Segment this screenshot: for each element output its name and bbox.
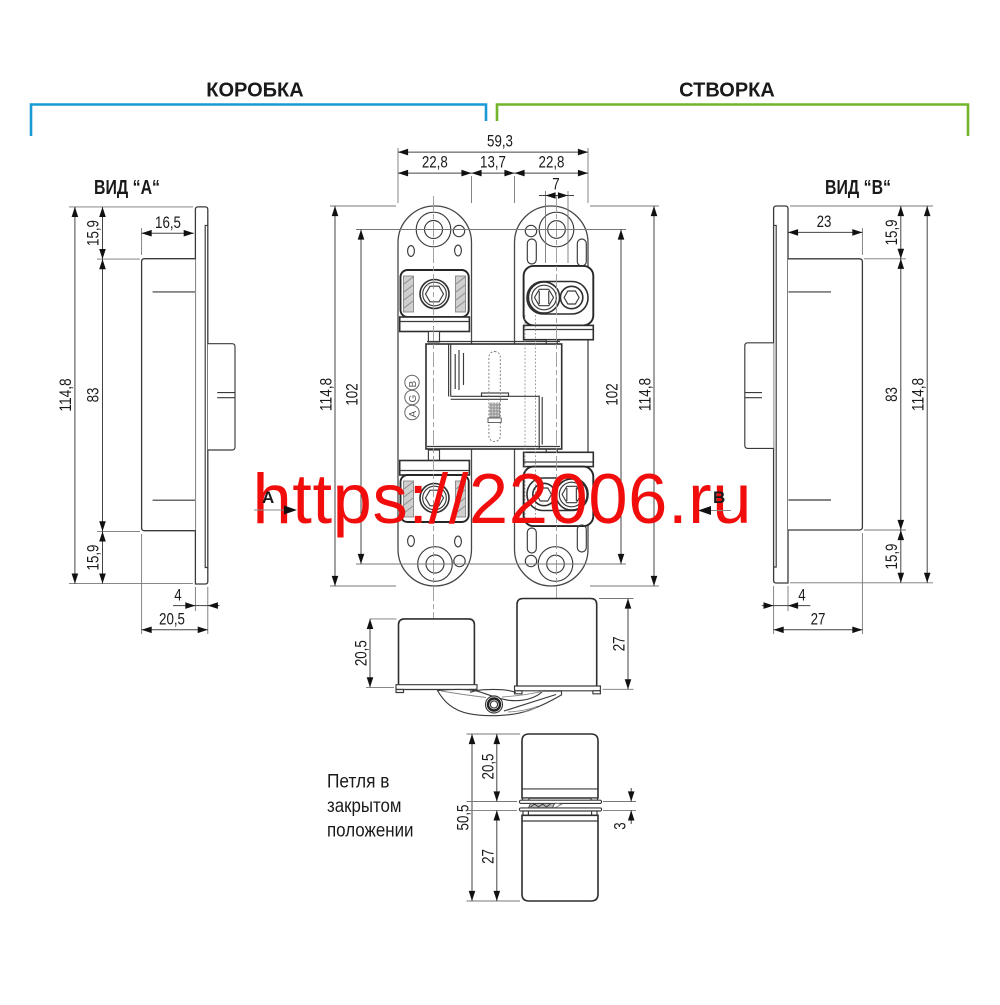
svg-text:СТВОРКА: СТВОРКА <box>679 80 775 102</box>
svg-text:G: G <box>408 395 419 403</box>
svg-text:13,7: 13,7 <box>480 154 506 172</box>
svg-text:https://22006.ru: https://22006.ru <box>253 459 753 538</box>
svg-text:83: 83 <box>85 388 103 403</box>
svg-text:A: A <box>408 411 419 418</box>
svg-text:закрытом: закрытом <box>327 795 402 817</box>
svg-text:114,8: 114,8 <box>910 378 928 411</box>
svg-text:15,9: 15,9 <box>85 220 103 246</box>
svg-text:59,3: 59,3 <box>487 133 513 151</box>
svg-text:102: 102 <box>604 383 622 405</box>
svg-text:положении: положении <box>327 820 414 842</box>
svg-text:B: B <box>408 381 419 388</box>
svg-text:15,9: 15,9 <box>85 545 103 571</box>
svg-text:16,5: 16,5 <box>155 214 181 232</box>
svg-text:15,9: 15,9 <box>883 219 901 245</box>
svg-text:114,8: 114,8 <box>318 378 336 411</box>
svg-text:23: 23 <box>817 213 832 231</box>
svg-text:7: 7 <box>552 176 559 194</box>
svg-text:20,5: 20,5 <box>159 611 185 629</box>
svg-text:ВИД “А“: ВИД “А“ <box>94 177 160 199</box>
svg-text:83: 83 <box>883 387 901 402</box>
svg-text:27: 27 <box>611 637 629 652</box>
svg-text:114,8: 114,8 <box>57 378 75 411</box>
svg-text:4: 4 <box>174 587 181 605</box>
svg-text:B: B <box>713 488 725 507</box>
svg-text:ВИД “В“: ВИД “В“ <box>825 177 891 199</box>
svg-text:50,5: 50,5 <box>455 805 473 831</box>
svg-text:27: 27 <box>811 611 826 629</box>
svg-text:КОРОБКА: КОРОБКА <box>206 80 303 102</box>
svg-text:102: 102 <box>344 383 362 405</box>
svg-text:20,5: 20,5 <box>479 754 497 780</box>
svg-text:27: 27 <box>479 849 497 864</box>
svg-text:20,5: 20,5 <box>353 640 371 666</box>
svg-text:22,8: 22,8 <box>422 154 448 172</box>
svg-text:4: 4 <box>798 587 805 605</box>
svg-text:15,9: 15,9 <box>883 544 901 570</box>
svg-text:114,8: 114,8 <box>637 378 655 411</box>
svg-text:3: 3 <box>612 822 630 829</box>
svg-text:A: A <box>262 488 274 507</box>
svg-text:Петля в: Петля в <box>327 771 390 793</box>
svg-text:22,8: 22,8 <box>539 154 565 172</box>
